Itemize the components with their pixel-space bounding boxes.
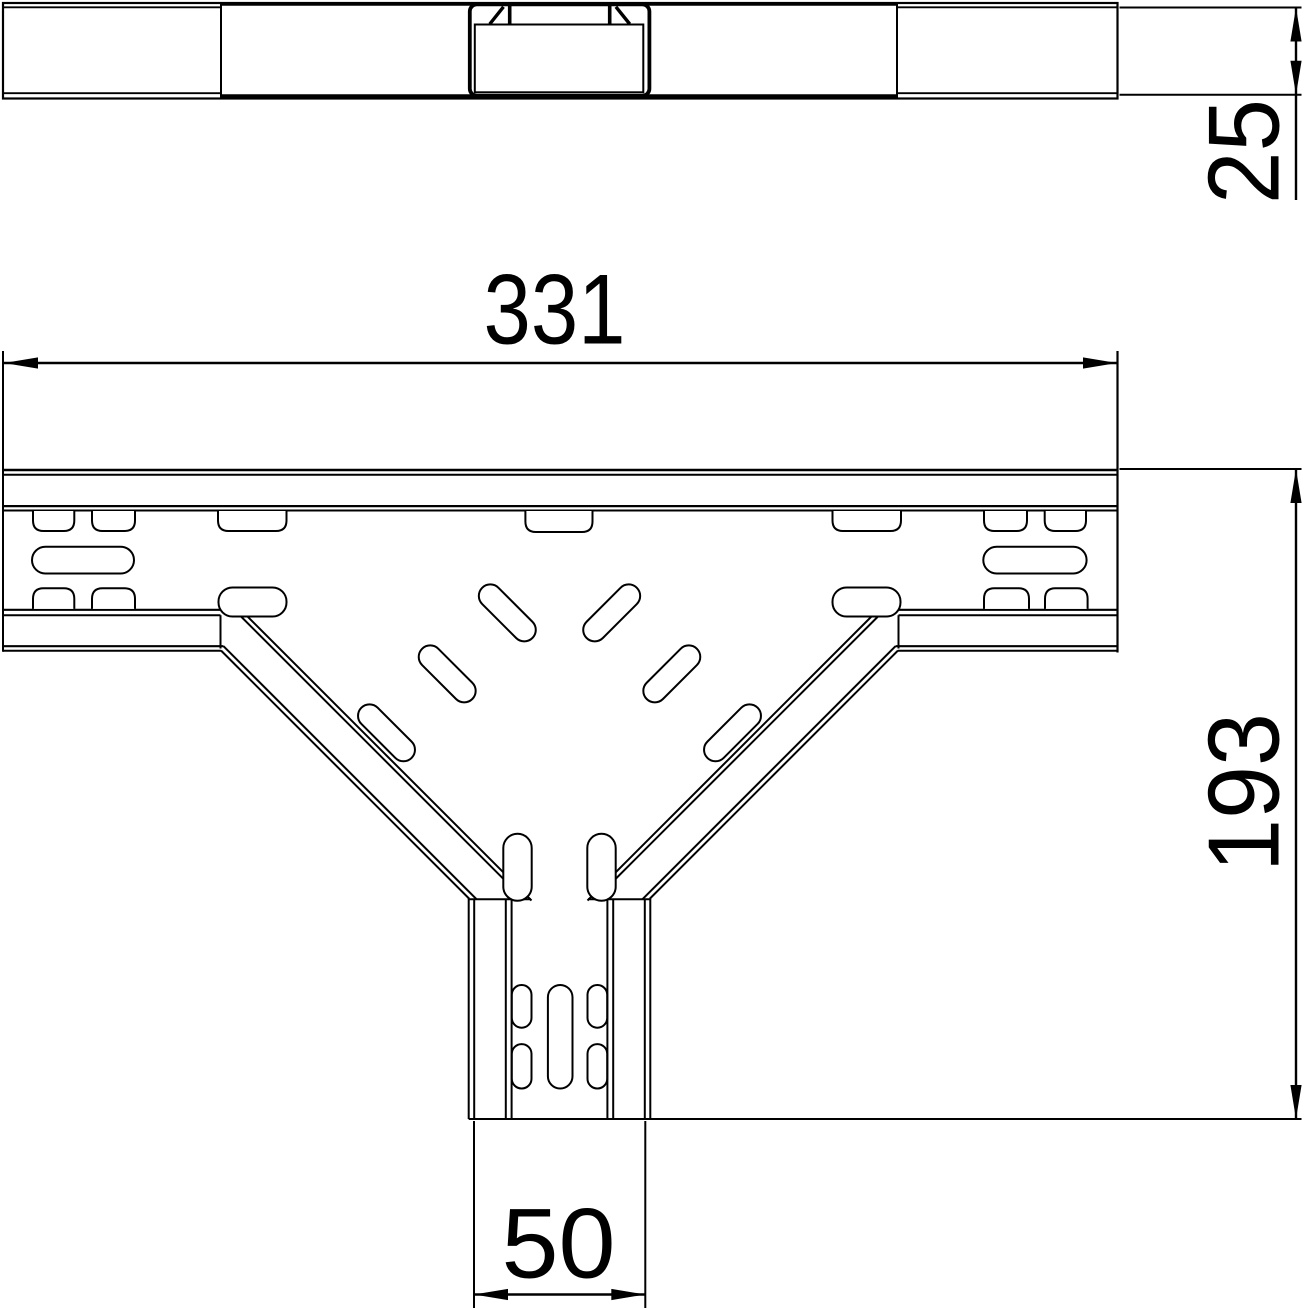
svg-text:25: 25 [1189, 99, 1301, 204]
svg-text:193: 193 [1189, 713, 1301, 872]
svg-text:50: 50 [502, 1188, 616, 1299]
svg-text:331: 331 [484, 254, 626, 365]
